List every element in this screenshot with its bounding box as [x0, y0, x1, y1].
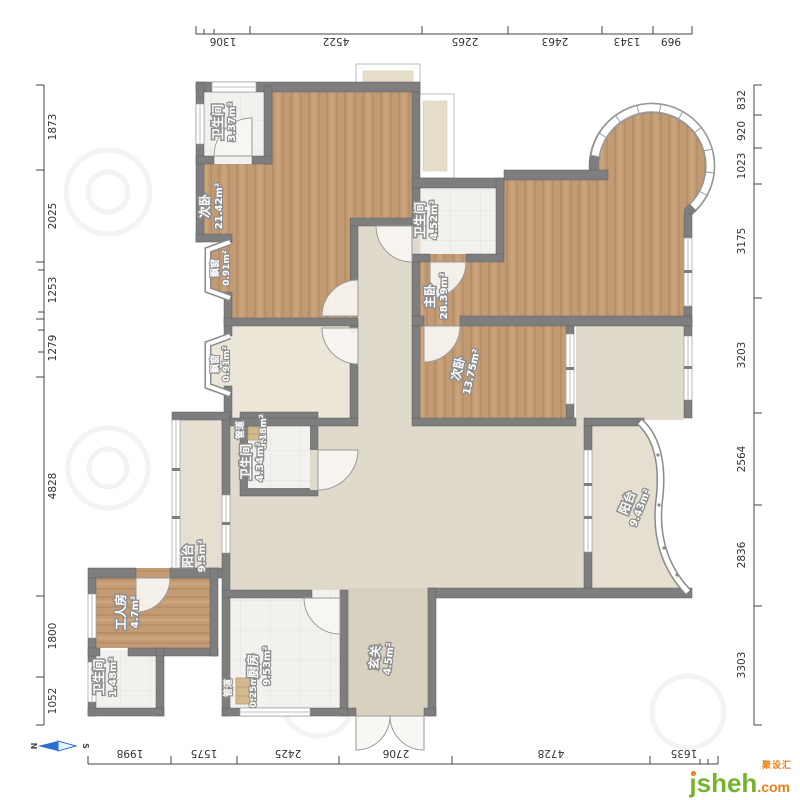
ruler-left: 1873 2025 1253 1279 4828 1800 1052: [36, 85, 59, 725]
svg-text:1873: 1873: [47, 114, 59, 141]
room-label-duct-kitchen: 管道: [222, 679, 234, 697]
svg-text:4.34m²: 4.34m²: [255, 442, 266, 481]
entry-door-arc-left: [356, 716, 390, 750]
room-label-bath-small: 卫生间1.48m²: [91, 657, 119, 696]
svg-text:1306: 1306: [209, 35, 236, 47]
svg-text:飘窗: 飘窗: [209, 355, 221, 373]
svg-text:9.53m²: 9.53m²: [262, 646, 273, 685]
floorplan-page: 卫生间3.37m² 次卧21.42m² 飘窗0.91m² 飘窗0.91m² 卫生…: [0, 0, 800, 800]
svg-text:4.52m²: 4.52m²: [429, 200, 440, 239]
logo-brand-text: jsheh: [689, 768, 757, 798]
svg-text:0.91m²: 0.91m²: [222, 250, 232, 286]
svg-text:1.48m²: 1.48m²: [108, 657, 119, 696]
svg-text:卫生间: 卫生间: [238, 444, 253, 480]
svg-text:卫生间: 卫生间: [210, 104, 225, 140]
entry-door-arc-right: [390, 716, 424, 750]
room-label-duct-mid: 管道: [234, 421, 246, 439]
logo-chinese-name: 聚设汇: [762, 761, 792, 770]
svg-text:2706: 2706: [382, 747, 409, 759]
svg-text:1575: 1575: [191, 747, 218, 759]
svg-text:4728: 4728: [538, 747, 565, 759]
ruler-ticks: [754, 85, 762, 725]
svg-text:1998: 1998: [117, 747, 144, 759]
compass: N S: [29, 741, 90, 751]
room-label-bath-topleft: 卫生间3.37m²: [210, 102, 238, 141]
svg-text:28.39m²: 28.39m²: [439, 273, 450, 319]
svg-text:1279: 1279: [47, 335, 59, 362]
ruler-bottom: 1998 1575 2425 2706 4728 1635: [88, 747, 718, 764]
svg-text:主卧: 主卧: [422, 284, 437, 308]
svg-text:1343: 1343: [614, 35, 641, 47]
svg-text:3203: 3203: [736, 342, 748, 369]
svg-text:969: 969: [661, 35, 681, 47]
svg-text:4828: 4828: [47, 473, 59, 500]
svg-text:21.42m²: 21.42m²: [214, 183, 225, 229]
ruler-ticks: [196, 26, 692, 34]
svg-text:832: 832: [736, 90, 748, 110]
room-label-worker-room: 工人房4.7m²: [113, 594, 141, 630]
svg-text:0.91m²: 0.91m²: [222, 346, 232, 382]
svg-text:3175: 3175: [736, 228, 748, 255]
room-label-bath-mid: 卫生间4.34m²: [238, 442, 266, 481]
svg-text:1052: 1052: [47, 688, 59, 715]
svg-text:卫生间: 卫生间: [91, 659, 106, 695]
floor-dining: [576, 326, 684, 420]
svg-text:厨房: 厨房: [245, 654, 260, 678]
svg-text:2025: 2025: [47, 203, 59, 230]
svg-text:4.7m²: 4.7m²: [130, 596, 141, 629]
site-logo: jsheh.com 聚设汇: [689, 761, 790, 796]
svg-text:工人房: 工人房: [113, 594, 128, 630]
compass-south-label: S: [81, 743, 90, 749]
logo-suffix-text: .com: [757, 779, 790, 795]
svg-text:1023: 1023: [736, 153, 748, 180]
svg-text:2265: 2265: [452, 35, 479, 47]
svg-text:飘窗: 飘窗: [209, 259, 221, 277]
svg-text:4522: 4522: [323, 35, 350, 47]
room-label-bath-master: 卫生间4.52m²: [412, 200, 440, 239]
svg-text:3303: 3303: [736, 652, 748, 679]
svg-text:次卧: 次卧: [197, 194, 212, 218]
svg-text:9.5m²: 9.5m²: [197, 540, 208, 573]
svg-text:1253: 1253: [47, 277, 59, 304]
ruler-ticks: [36, 85, 44, 725]
svg-text:玄关: 玄关: [366, 645, 383, 670]
svg-text:1800: 1800: [47, 623, 59, 650]
floorplan-svg: 卫生间3.37m² 次卧21.42m² 飘窗0.91m² 飘窗0.91m² 卫生…: [0, 0, 800, 800]
svg-text:3.37m²: 3.37m²: [227, 102, 238, 141]
svg-text:卫生间: 卫生间: [412, 202, 427, 238]
svg-text:2836: 2836: [736, 541, 748, 568]
svg-text:2463: 2463: [542, 35, 569, 47]
svg-text:2564: 2564: [736, 445, 748, 472]
svg-text:阳台: 阳台: [180, 544, 195, 568]
ruler-top: 1306 4522 2265 2463 1343 969: [196, 26, 692, 47]
svg-text:2425: 2425: [275, 747, 302, 759]
compass-north-label: N: [29, 743, 38, 750]
ruler-right: 832 920 1023 3175 3203 2564 2836 3303: [736, 85, 762, 725]
room-label-balcony-left: 阳台9.5m²: [180, 540, 208, 573]
room-floors: [96, 92, 686, 716]
compass-arrow-icon: [38, 741, 58, 751]
floor-master-main: [504, 180, 684, 316]
svg-text:1635: 1635: [671, 747, 698, 759]
svg-text:920: 920: [736, 121, 748, 141]
